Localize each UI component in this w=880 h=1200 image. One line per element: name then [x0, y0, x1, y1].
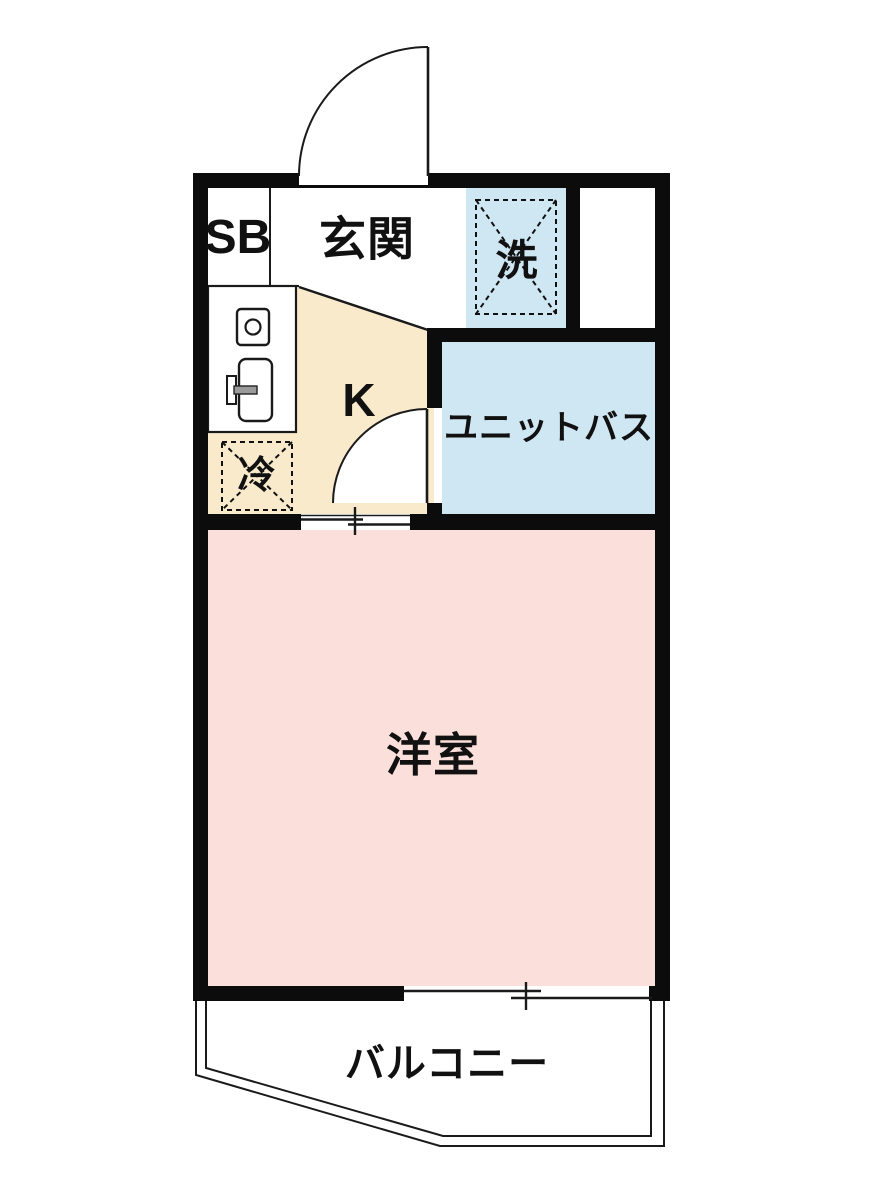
wall-right: [655, 173, 670, 1001]
wall-top-right: [428, 173, 670, 188]
utility-space-area: [580, 188, 655, 328]
wall-left: [193, 173, 208, 1001]
wall-washer-right: [566, 188, 580, 328]
shoe-box-label: SB: [205, 214, 272, 262]
stove-burner-icon: [237, 309, 269, 345]
washer-space-label: 洗: [495, 240, 538, 282]
wall-bottom-left: [193, 986, 404, 1001]
kitchen-counter: [208, 286, 296, 432]
wall-bath-left-upper: [427, 342, 442, 408]
balcony-label: バルコニー: [345, 1044, 549, 1084]
entrance-label: 玄関: [319, 216, 415, 263]
floor-plan-drawing: [0, 0, 880, 1200]
sliding-window-icon: [404, 982, 652, 1010]
wall-mid-left: [193, 514, 301, 530]
floor-plan: SB 玄関 洗 K ユニットバス 冷 洋室 バルコニー: [0, 0, 880, 1200]
refrigerator-space-label: 冷: [237, 457, 276, 495]
wall-bottom-right: [649, 986, 670, 1001]
entrance-door-swing-icon: [299, 47, 428, 176]
wall-top-left: [193, 173, 299, 188]
wall-mid-right: [410, 514, 670, 530]
unit-bath-label: ユニットバス: [444, 411, 654, 445]
western-room-label: 洋室: [386, 732, 480, 778]
wall-bath-top: [427, 328, 670, 342]
wall-bath-left-lower: [427, 503, 442, 515]
kitchen-label: K: [342, 377, 375, 423]
